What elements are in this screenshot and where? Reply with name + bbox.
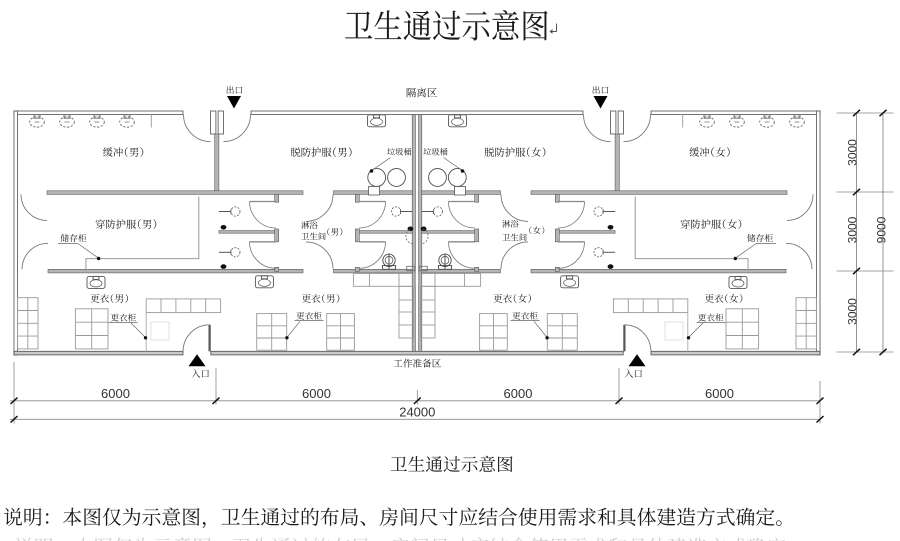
svg-text:6000: 6000 [101,386,130,401]
svg-text:24000: 24000 [399,405,435,420]
svg-text:9000: 9000 [875,216,889,243]
svg-text:6000: 6000 [302,386,331,401]
svg-text:3000: 3000 [846,139,860,166]
svg-text:6000: 6000 [705,386,734,401]
svg-text:3000: 3000 [846,298,860,325]
svg-text:3000: 3000 [846,216,860,243]
svg-text:6000: 6000 [504,386,533,401]
